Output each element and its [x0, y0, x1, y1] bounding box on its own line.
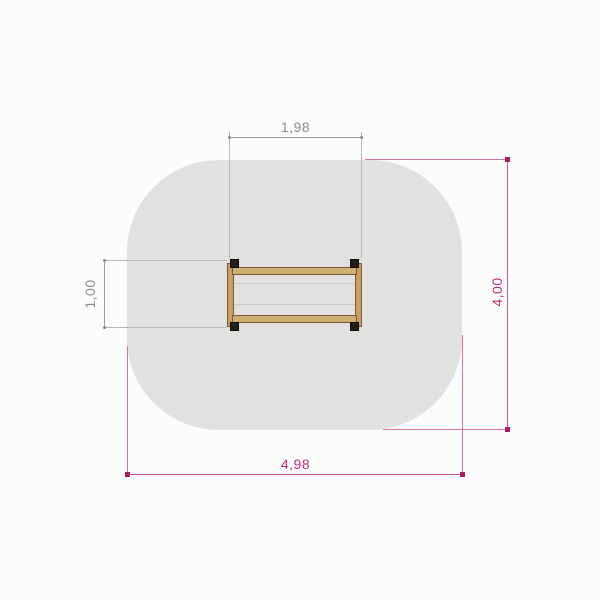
extension-line: [127, 346, 128, 475]
dimension-label-right: 4,00: [489, 270, 505, 314]
dimension-end-marker: [228, 136, 231, 139]
dimension-line: [127, 474, 462, 475]
dimension-end-marker: [460, 472, 465, 477]
dimension-label-bottom: 4,98: [229, 456, 362, 472]
dimension-label-left: 1,00: [82, 272, 98, 316]
frame-rail-top: [232, 267, 357, 275]
extension-line: [365, 159, 507, 160]
dimension-end-marker: [125, 472, 130, 477]
extension-line: [104, 327, 227, 328]
dimension-end-marker: [505, 427, 510, 432]
corner-post-bottom-right: [350, 322, 359, 331]
frame-rail-bottom: [232, 315, 357, 323]
extension-line: [229, 132, 230, 258]
frame-slat-line-1: [234, 283, 355, 284]
dimension-end-marker: [103, 326, 106, 329]
extension-line: [383, 429, 507, 430]
frame-slat-line-2: [234, 304, 355, 305]
equipment-frame: [227, 262, 362, 328]
corner-post-bottom-left: [230, 322, 239, 331]
dimension-line: [507, 159, 508, 430]
extension-line: [361, 132, 362, 258]
extension-line: [104, 260, 227, 261]
corner-post-top-right: [350, 259, 359, 268]
dimension-end-marker: [360, 136, 363, 139]
dimension-line: [104, 260, 105, 328]
extension-line: [462, 335, 463, 475]
dimension-line: [229, 137, 362, 138]
dimension-label-top: 1,98: [229, 119, 362, 135]
dimension-end-marker: [103, 259, 106, 262]
technical-drawing-canvas: 1,98 1,00 4,00 4,98: [0, 0, 600, 600]
corner-post-top-left: [230, 259, 239, 268]
dimension-end-marker: [505, 157, 510, 162]
